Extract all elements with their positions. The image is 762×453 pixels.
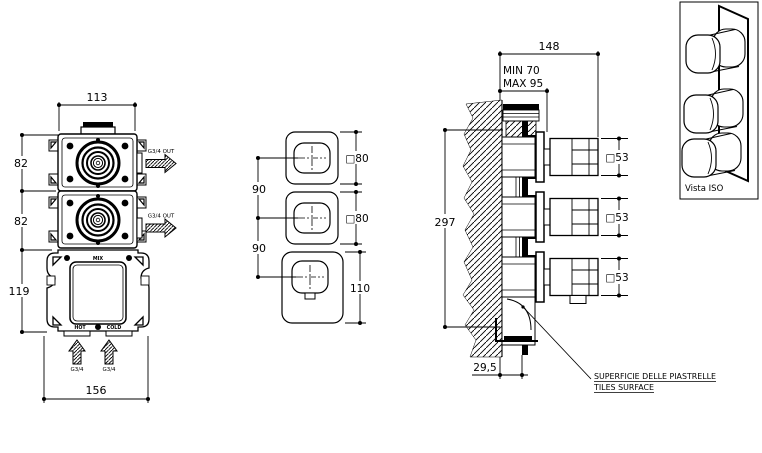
technical-drawing-canvas: MIX HOT COLD G3/4 OUT G3/4 OUT G3/4 G3/4 <box>0 0 762 453</box>
escutcheon-top <box>536 132 544 182</box>
note-line2: TILES SURFACE <box>593 383 654 392</box>
temp-stop-tab-side <box>570 296 586 304</box>
cap-top <box>83 122 113 127</box>
handle-assembly-mid <box>502 192 598 242</box>
handle-knob-top <box>550 139 598 176</box>
dim-spacing-top: 90 <box>252 183 266 196</box>
dim-module-mid: 82 <box>14 215 28 228</box>
tiles-surface-note: SUPERFICIE DELLE PIASTRELLE TILES SURFAC… <box>521 305 716 392</box>
dim-width-top: 113 <box>87 91 108 104</box>
iso-knob-mid <box>684 89 743 133</box>
section-view: 148 MIN 70 MAX 95 297 29,5 □53 <box>430 40 716 393</box>
handle-knob-bottom <box>550 259 598 296</box>
escutcheon-mid <box>536 192 544 242</box>
outlet-arrow-mid-icon: G3/4 OUT <box>146 214 176 238</box>
iso-view: Vista ISO <box>680 2 758 199</box>
cold-inlet-arrow-icon: G3/4 <box>101 340 117 373</box>
temp-stop-tab <box>305 293 315 299</box>
dim-spacing-bottom: 90 <box>252 242 266 255</box>
dim-depth-min: MIN 70 <box>503 65 540 77</box>
trim-front-view: 90 90 □80 □80 110 <box>247 130 374 325</box>
dim-plate-top: □80 <box>345 153 368 165</box>
rough-in-front-view: MIX HOT COLD G3/4 OUT G3/4 OUT G3/4 G3/4 <box>4 91 176 403</box>
handle-assembly-bottom <box>502 252 598 304</box>
iso-knob-top <box>686 29 745 73</box>
dim-body-bottom: 119 <box>9 285 30 298</box>
iso-caption: Vista ISO <box>685 184 724 194</box>
dim-knob-bottom: □53 <box>605 272 628 284</box>
hot-label: HOT <box>74 325 86 331</box>
inlet-left-label: G3/4 <box>70 367 84 373</box>
dim-knob-mid: □53 <box>605 212 628 224</box>
inlet-right-label: G3/4 <box>102 367 116 373</box>
dim-module-top: 82 <box>14 157 28 170</box>
cold-label: COLD <box>107 325 122 331</box>
hot-inlet-arrow-icon: G3/4 <box>69 340 85 373</box>
valve-module-top <box>49 134 146 191</box>
inwall-box-top <box>503 104 539 137</box>
technical-drawing-page: MIX HOT COLD G3/4 OUT G3/4 OUT G3/4 G3/4 <box>0 0 762 453</box>
escutcheon-bottom <box>536 252 544 302</box>
mixer-block: MIX HOT COLD <box>47 250 149 336</box>
dim-plate-bottom: 110 <box>350 283 370 295</box>
note-line1: SUPERFICIE DELLE PIASTRELLE <box>594 372 716 381</box>
dim-depth-total: 148 <box>539 40 560 53</box>
dim-depth-max: MAX 95 <box>503 78 543 90</box>
outlet-arrow-top-icon: G3/4 OUT <box>146 149 176 173</box>
valve-module-mid <box>49 191 146 248</box>
dim-height-total: 297 <box>435 216 456 229</box>
outlet-mid-label: G3/4 OUT <box>148 214 175 220</box>
inwall-body-bottom <box>496 297 538 345</box>
outlet-top-label: G3/4 OUT <box>148 149 175 155</box>
dim-knob-top: □53 <box>605 152 628 164</box>
dim-tile-offset: 29,5 <box>473 362 496 374</box>
handle-knob-mid <box>550 199 598 236</box>
dim-width-bottom: 156 <box>86 384 107 397</box>
mix-label: MIX <box>93 256 104 262</box>
iso-knob-bottom <box>682 133 741 177</box>
handle-assembly-top <box>502 132 598 182</box>
dim-plate-mid: □80 <box>345 213 368 225</box>
